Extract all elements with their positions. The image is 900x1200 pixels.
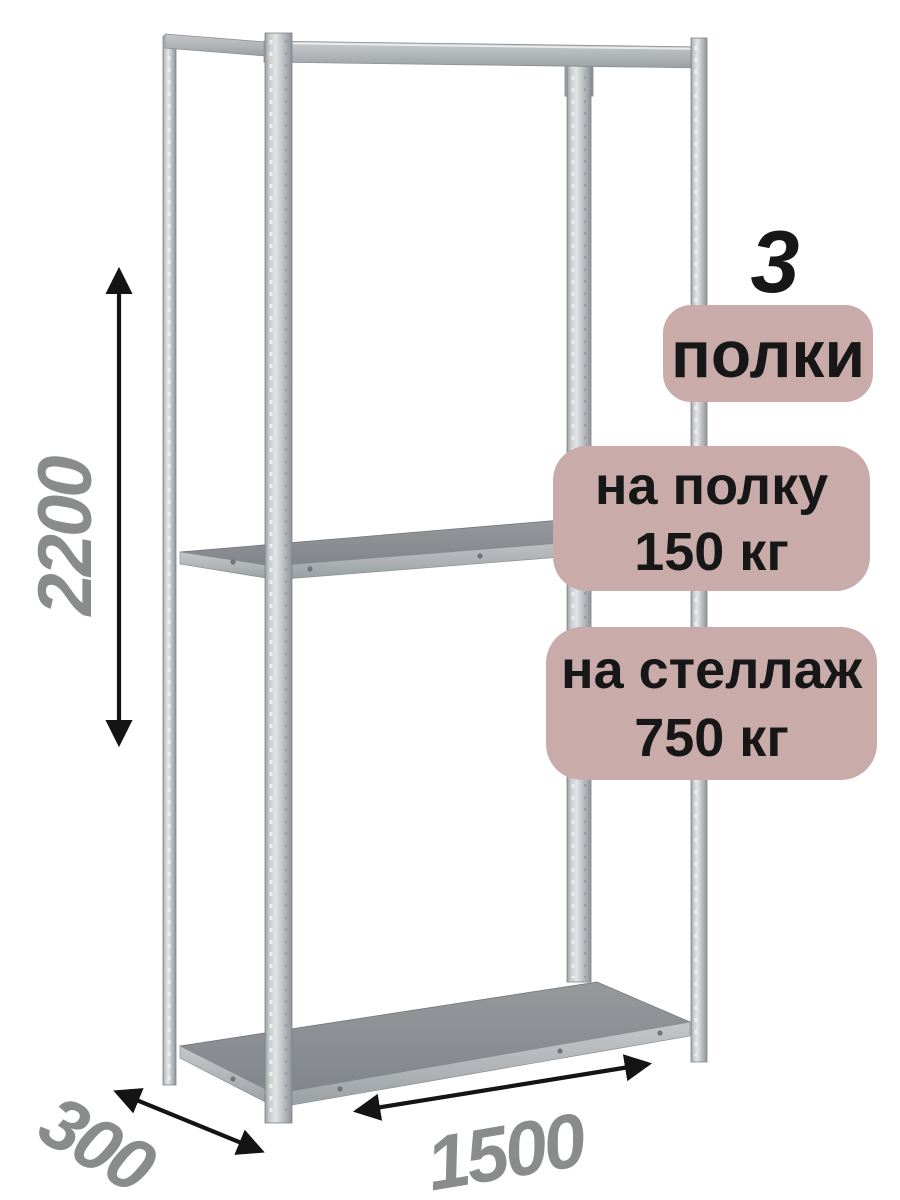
shelving-rack-illustration bbox=[0, 0, 900, 1200]
per-rack-load-value: 750 кг bbox=[634, 704, 789, 772]
per-shelf-load-badge: на полку 150 кг bbox=[553, 446, 870, 591]
shelf-bolt bbox=[307, 566, 312, 571]
top-shelf bbox=[165, 34, 706, 68]
shelf-bolt bbox=[230, 559, 235, 564]
height-dimension-label: 2200 bbox=[21, 417, 111, 657]
shelf-bolt bbox=[557, 1048, 562, 1053]
per-shelf-load-value: 150 кг bbox=[634, 519, 789, 585]
per-shelf-load-text: на полку bbox=[595, 453, 828, 519]
shelf-bolt bbox=[230, 1076, 235, 1081]
front-left-post bbox=[265, 33, 292, 1123]
shelf-count-number: 3 bbox=[713, 210, 837, 314]
shelf-bolt bbox=[477, 553, 482, 558]
shelf-bolt bbox=[337, 1086, 342, 1091]
product-image: 3 полки на полку 150 кг на стеллаж 750 к… bbox=[0, 0, 900, 1200]
per-rack-load-badge: на стеллаж 750 кг bbox=[546, 627, 877, 780]
shelf-bolt bbox=[657, 1030, 662, 1035]
shelf-count-label: полки bbox=[671, 316, 865, 392]
per-rack-load-text: на стеллаж bbox=[561, 636, 862, 704]
shelf-count-badge: полки bbox=[663, 305, 873, 402]
